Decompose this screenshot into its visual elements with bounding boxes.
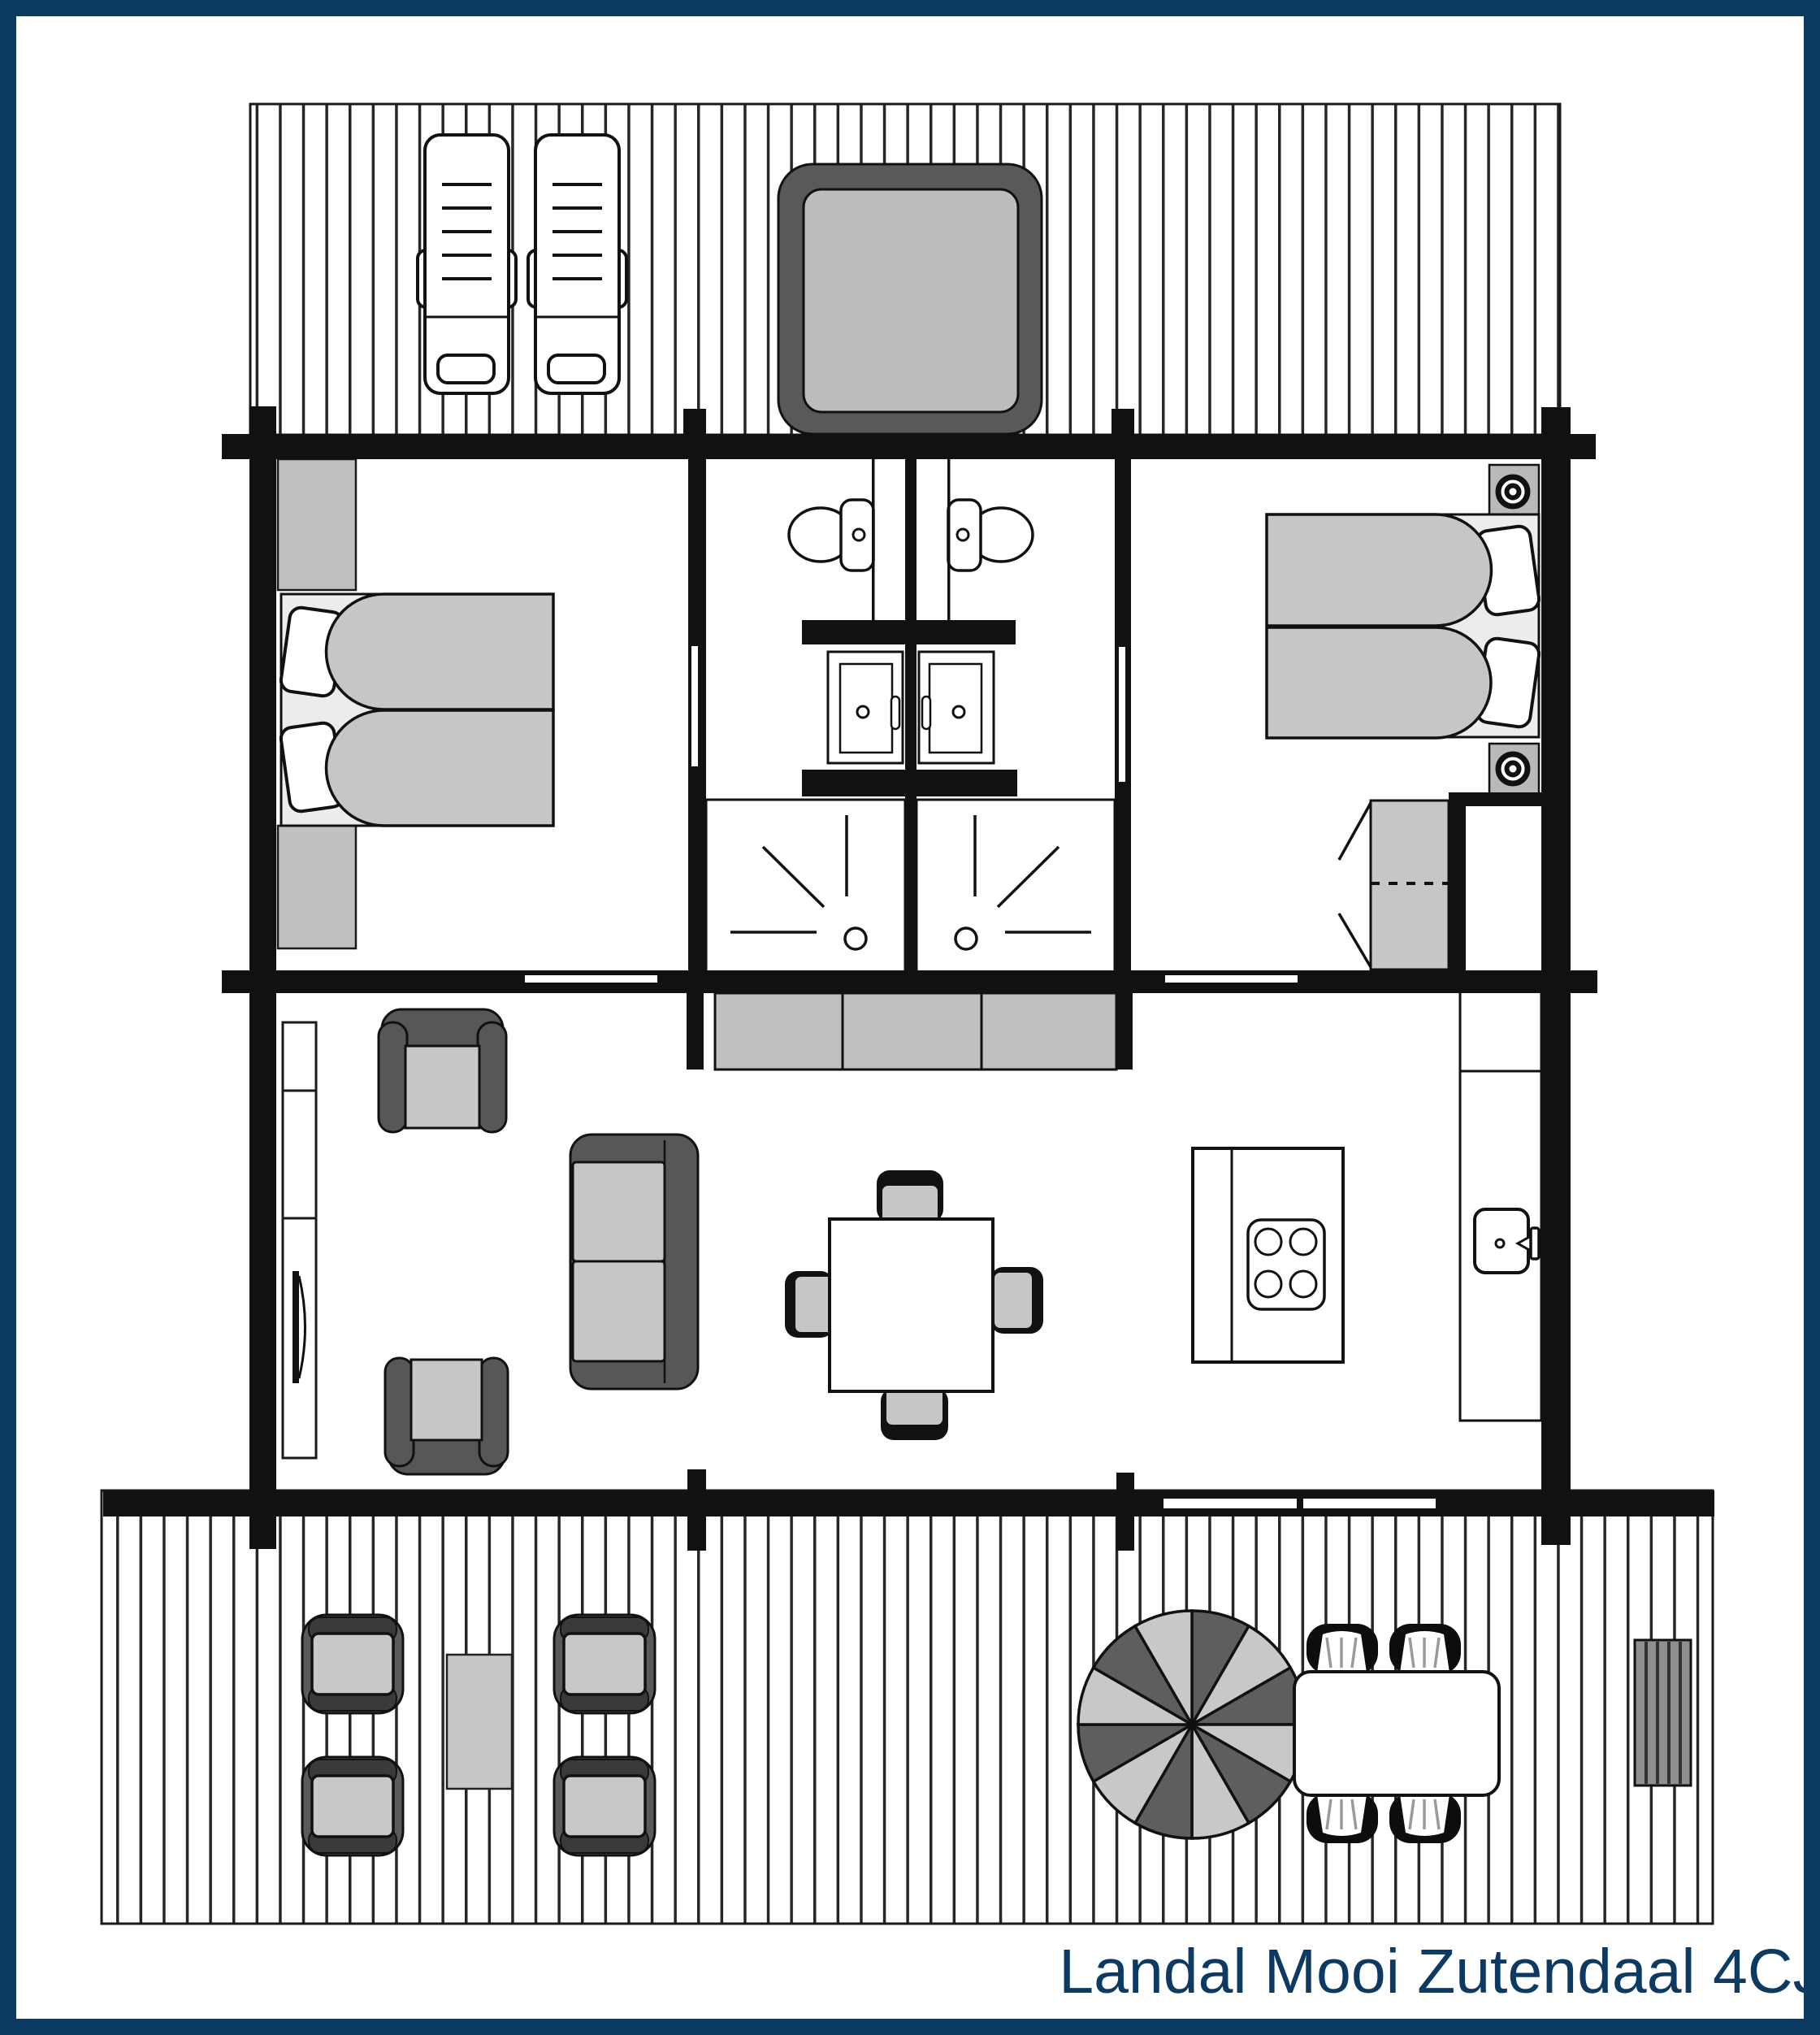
svg-text:Landal Mooi Zutendaal 4CJ: Landal Mooi Zutendaal 4CJ — [1059, 1937, 1820, 2007]
